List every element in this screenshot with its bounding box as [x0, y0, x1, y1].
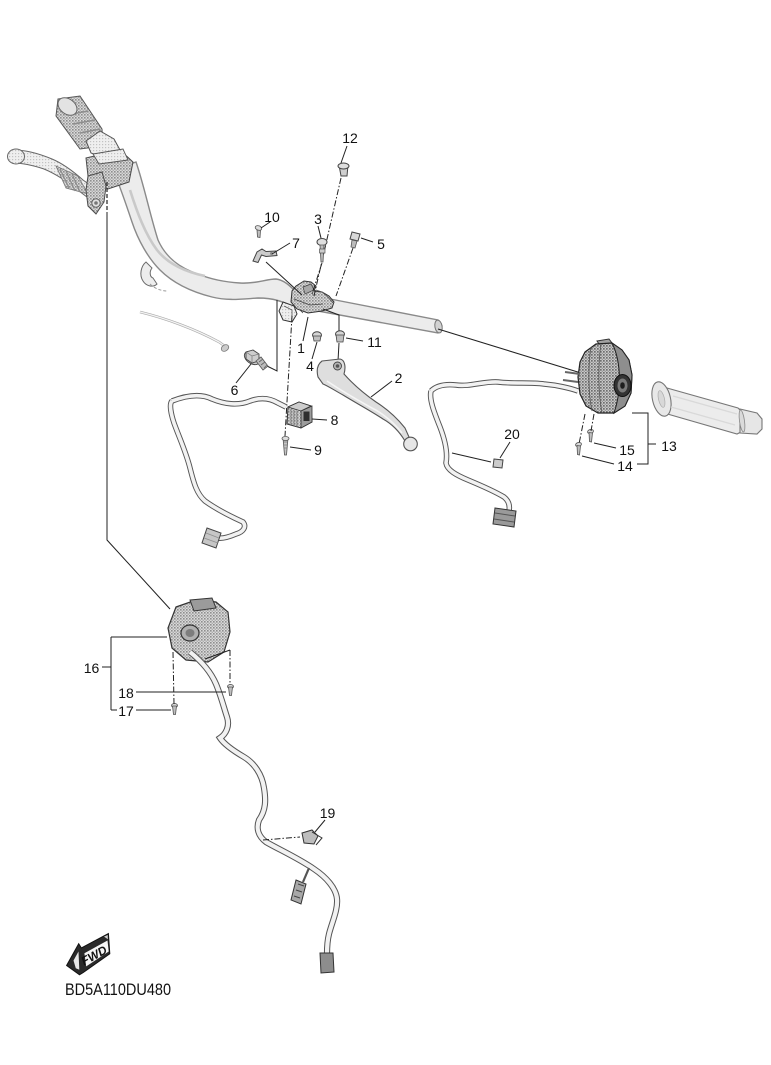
svg-text:BD5A110DU480: BD5A110DU480	[65, 980, 171, 999]
svg-text:19: 19	[320, 805, 336, 821]
svg-text:18: 18	[118, 685, 134, 701]
svg-text:11: 11	[367, 334, 382, 350]
svg-text:8: 8	[331, 412, 339, 428]
svg-text:2: 2	[395, 370, 403, 386]
svg-text:6: 6	[231, 382, 239, 398]
svg-text:4: 4	[306, 358, 314, 374]
svg-text:3: 3	[314, 211, 322, 227]
svg-text:1: 1	[297, 340, 305, 356]
svg-text:17: 17	[118, 703, 134, 719]
svg-text:12: 12	[342, 130, 358, 146]
svg-text:15: 15	[619, 442, 635, 458]
svg-text:16: 16	[84, 660, 100, 676]
svg-text:10: 10	[264, 209, 280, 225]
svg-text:14: 14	[617, 458, 633, 474]
svg-text:7: 7	[292, 235, 300, 251]
svg-text:13: 13	[661, 438, 677, 454]
svg-text:5: 5	[377, 236, 385, 252]
svg-text:9: 9	[314, 442, 322, 458]
svg-text:20: 20	[504, 426, 520, 442]
